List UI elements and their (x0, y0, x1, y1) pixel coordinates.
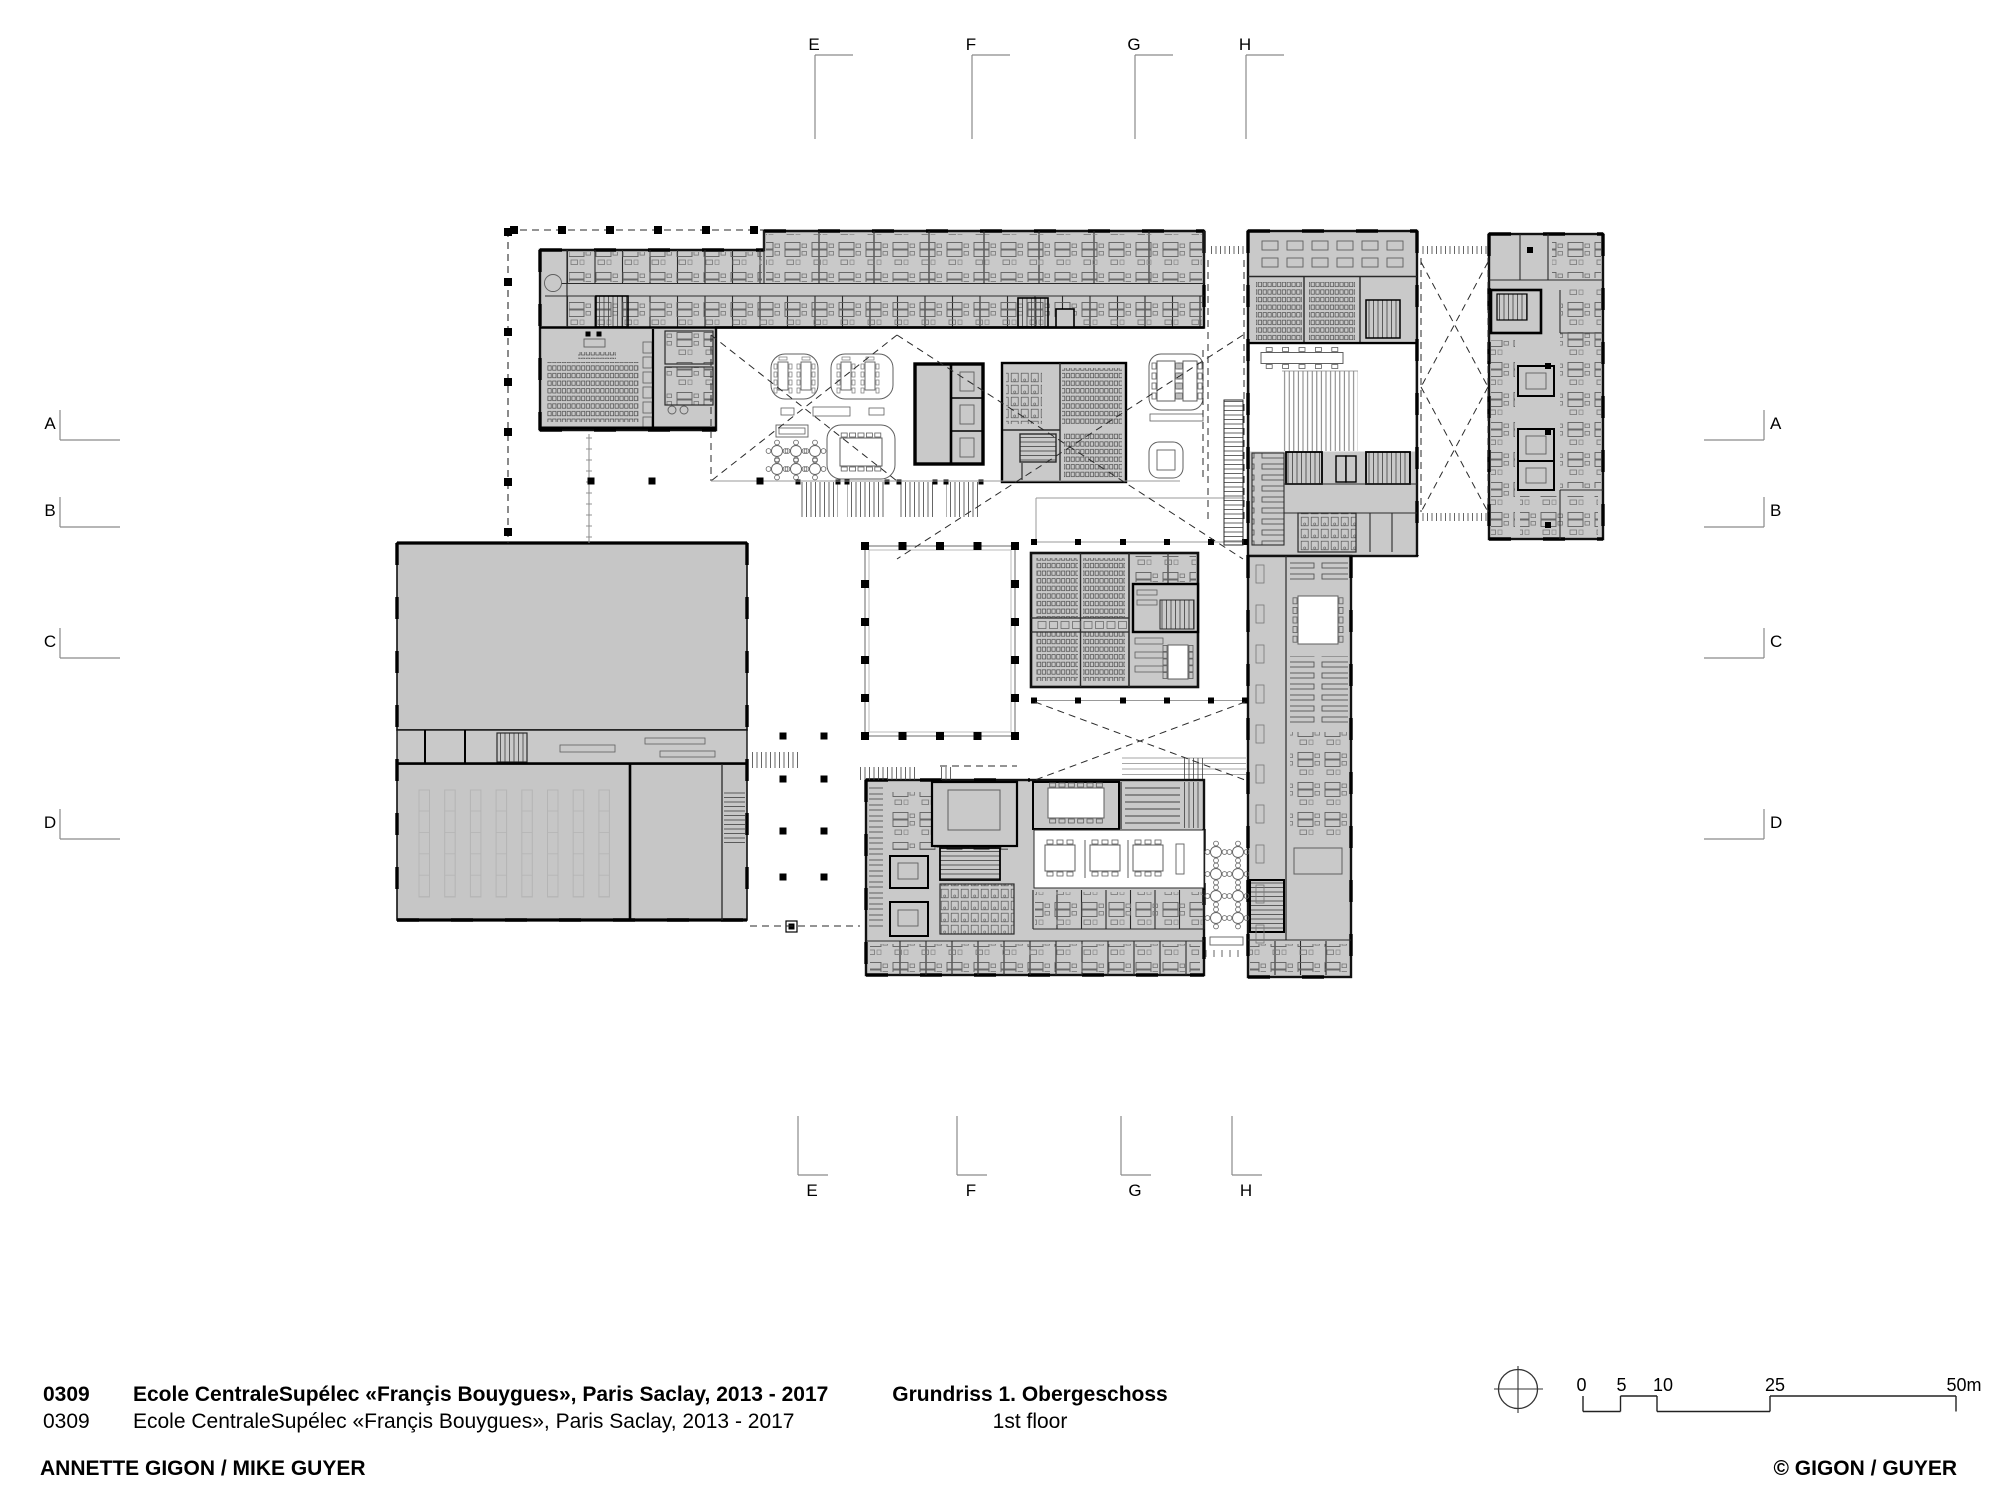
svg-text:G: G (1128, 1181, 1141, 1200)
svg-text:F: F (966, 35, 976, 54)
svg-text:D: D (1770, 813, 1782, 832)
svg-text:H: H (1239, 35, 1251, 54)
svg-text:B: B (1770, 501, 1781, 520)
svg-text:10: 10 (1653, 1375, 1673, 1395)
svg-text:G: G (1127, 35, 1140, 54)
svg-text:50m: 50m (1946, 1375, 1981, 1395)
svg-text:B: B (44, 501, 55, 520)
svg-text:0: 0 (1576, 1375, 1586, 1395)
svg-text:H: H (1240, 1181, 1252, 1200)
svg-text:C: C (44, 632, 56, 651)
svg-text:© GIGON / GUYER: © GIGON / GUYER (1774, 1457, 1958, 1480)
svg-text:25: 25 (1765, 1375, 1785, 1395)
svg-text:1st floor: 1st floor (993, 1410, 1068, 1433)
svg-text:0309: 0309 (43, 1383, 90, 1406)
svg-text:E: E (806, 1181, 817, 1200)
svg-text:E: E (808, 35, 819, 54)
svg-text:A: A (1770, 414, 1782, 433)
svg-text:C: C (1770, 632, 1782, 651)
svg-text:Ecole CentraleSupélec «Françis: Ecole CentraleSupélec «Françis Bouygues»… (133, 1410, 795, 1433)
svg-text:ANNETTE GIGON / MIKE GUYER: ANNETTE GIGON / MIKE GUYER (40, 1457, 366, 1480)
svg-text:Ecole CentraleSupélec «Françis: Ecole CentraleSupélec «Françis Bouygues»… (133, 1383, 828, 1406)
svg-text:Grundriss 1. Obergeschoss: Grundriss 1. Obergeschoss (892, 1383, 1167, 1406)
svg-text:5: 5 (1616, 1375, 1626, 1395)
svg-text:F: F (966, 1181, 976, 1200)
svg-text:D: D (44, 813, 56, 832)
svg-text:0309: 0309 (43, 1410, 90, 1433)
svg-text:A: A (44, 414, 56, 433)
